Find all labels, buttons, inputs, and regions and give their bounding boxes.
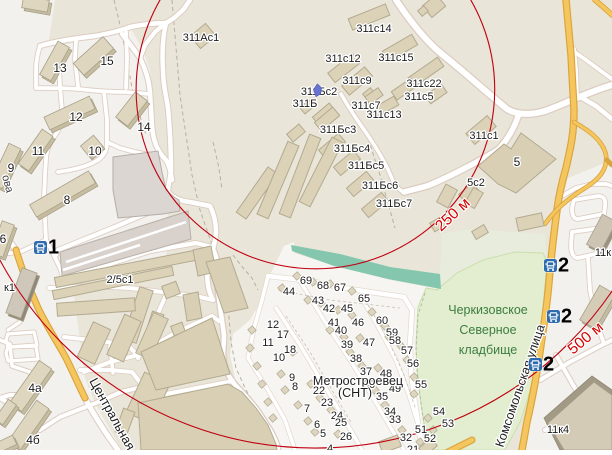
svg-text:311с22: 311с22: [406, 78, 441, 90]
svg-text:47: 47: [363, 337, 375, 349]
svg-text:11к: 11к: [595, 247, 611, 259]
svg-text:26: 26: [340, 431, 352, 443]
svg-text:51: 51: [415, 424, 427, 436]
svg-text:311с9: 311с9: [342, 75, 371, 87]
svg-text:10: 10: [88, 144, 102, 158]
svg-text:10: 10: [273, 352, 285, 364]
svg-text:56: 56: [407, 358, 419, 370]
svg-text:32: 32: [400, 432, 412, 444]
svg-text:18: 18: [284, 344, 296, 356]
svg-text:25: 25: [335, 417, 347, 429]
svg-text:13: 13: [53, 61, 67, 75]
svg-text:2: 2: [543, 354, 554, 376]
svg-text:23: 23: [321, 397, 333, 409]
svg-text:33: 33: [389, 414, 401, 426]
svg-text:45: 45: [341, 303, 353, 315]
svg-text:4а: 4а: [28, 381, 42, 395]
svg-text:ЧеркизовскоеСеверноекладбище: ЧеркизовскоеСеверноекладбище: [448, 303, 528, 357]
svg-text:35: 35: [376, 391, 388, 403]
svg-text:12: 12: [69, 110, 83, 124]
svg-text:311с1: 311с1: [469, 130, 498, 142]
svg-text:311с15: 311с15: [378, 52, 413, 64]
svg-text:21: 21: [407, 444, 419, 450]
svg-text:2: 2: [558, 255, 569, 277]
svg-text:14: 14: [137, 120, 151, 134]
svg-text:4б: 4б: [26, 433, 40, 447]
svg-text:7: 7: [304, 403, 310, 415]
svg-text:311Бс6: 311Бс6: [362, 180, 398, 192]
svg-text:57: 57: [401, 345, 413, 357]
svg-text:311с14: 311с14: [356, 23, 391, 35]
svg-text:8: 8: [292, 381, 298, 393]
svg-text:5с2: 5с2: [467, 177, 485, 189]
svg-text:4: 4: [327, 443, 333, 450]
svg-text:311Бс7: 311Бс7: [376, 198, 412, 210]
svg-text:58: 58: [389, 335, 401, 347]
svg-text:11к4: 11к4: [547, 424, 569, 436]
svg-text:(СНТ): (СНТ): [338, 386, 372, 400]
svg-text:60: 60: [376, 315, 388, 327]
svg-text:39: 39: [341, 339, 353, 351]
svg-text:69: 69: [300, 275, 312, 287]
svg-text:1: 1: [48, 237, 59, 259]
svg-text:311с12: 311с12: [325, 53, 360, 65]
svg-text:311с13: 311с13: [366, 109, 401, 121]
svg-text:53: 53: [442, 418, 454, 430]
svg-text:15: 15: [100, 54, 114, 68]
svg-text:11: 11: [262, 337, 273, 349]
svg-text:40: 40: [335, 325, 347, 337]
svg-text:6: 6: [0, 232, 7, 246]
svg-text:42: 42: [323, 303, 335, 315]
svg-text:38: 38: [350, 353, 362, 365]
svg-text:2: 2: [561, 306, 572, 328]
svg-text:5: 5: [514, 155, 521, 169]
svg-text:17: 17: [277, 329, 289, 341]
svg-text:311Бс3: 311Бс3: [320, 124, 356, 136]
svg-text:46: 46: [352, 317, 364, 329]
svg-text:67: 67: [334, 282, 346, 294]
svg-text:65: 65: [358, 293, 370, 305]
svg-text:11: 11: [32, 144, 45, 158]
svg-text:311Б: 311Б: [293, 98, 318, 110]
svg-text:311Ас1: 311Ас1: [183, 32, 220, 44]
svg-text:2/5с1: 2/5с1: [107, 274, 134, 286]
svg-text:311с5: 311с5: [404, 91, 433, 103]
svg-text:54: 54: [433, 406, 445, 418]
svg-text:311Бс4: 311Бс4: [334, 143, 370, 155]
svg-text:5: 5: [320, 428, 326, 440]
svg-text:55: 55: [415, 379, 427, 391]
svg-text:8: 8: [64, 193, 71, 207]
svg-text:68: 68: [317, 280, 329, 292]
svg-text:44: 44: [283, 286, 295, 298]
svg-text:311Бс5: 311Бс5: [348, 160, 384, 172]
svg-text:к1: к1: [4, 282, 15, 294]
